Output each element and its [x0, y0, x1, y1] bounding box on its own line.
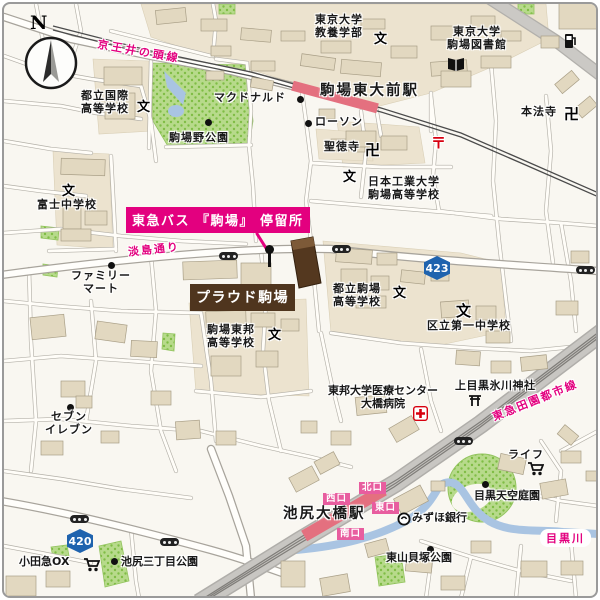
route-badge-423: 423 [424, 256, 450, 280]
poi-dot-komabano [205, 119, 212, 126]
label-nihon-kogyo: 日本工業大学 駒場高等学校 [368, 175, 440, 201]
road-label-awashima: 淡島通り [127, 240, 180, 259]
label-komaba-toho: 駒場東邦 高等学校 [207, 323, 255, 349]
label-kokusai-high: 都立国際 高等学校 [73, 89, 137, 115]
label-todai-kyoyo: 東京大学 教養学部 [309, 13, 369, 39]
library-book-icon [446, 58, 466, 73]
manji-icon-honpoji: 卍 [564, 103, 579, 124]
label-shotokuji: 聖徳寺 [324, 140, 360, 153]
traffic-light-icon [576, 266, 595, 274]
map-frame: N 京王井の頭線 淡島通り 東急田園都市線 駒場東大前駅 池尻大橋駅 北口 西口… [2, 2, 598, 598]
post-office-icon: 〒 [431, 132, 446, 153]
label-overlay: N 京王井の頭線 淡島通り 東急田園都市線 駒場東大前駅 池尻大橋駅 北口 西口… [4, 4, 596, 596]
traffic-light-icon [219, 252, 238, 260]
bank-icon-mizuho [397, 512, 411, 526]
bus-stop-banner: 東急バス 『駒場』 停留所 [126, 207, 310, 233]
property-banner: プラウド駒場 [190, 284, 295, 311]
exit-badge-south: 南口 [337, 528, 364, 540]
traffic-light-icon [160, 538, 179, 546]
school-symbol-toritsu-komaba: 文 [393, 282, 406, 301]
label-honpoji: 本法寺 [521, 105, 557, 118]
traffic-light-icon [70, 515, 89, 523]
torii-icon [468, 393, 482, 406]
bus-stop-icon [268, 252, 271, 267]
cart-icon-odakyu [83, 557, 100, 572]
exit-badge-west: 西口 [323, 493, 350, 505]
poi-dot-ikejiri-park [111, 558, 118, 565]
school-symbol-komaba-toho: 文 [268, 324, 281, 343]
label-toritsu-komaba: 都立駒場 高等学校 [333, 282, 381, 308]
school-symbol-fuji: 文 [62, 180, 75, 199]
traffic-light-icon [454, 437, 473, 445]
label-fuji-junior: 富士中学校 [37, 198, 97, 211]
label-ohashi-hospital: 東邦大学医療センター 大橋病院 [312, 384, 454, 410]
railway-label-keio: 京王井の頭線 [96, 38, 181, 66]
exit-badge-north: 北口 [359, 482, 386, 494]
manji-icon-shotokuji: 卍 [365, 139, 380, 160]
label-hikawa-shrine: 上目黒氷川神社 [455, 379, 536, 392]
label-lawson: ローソン [315, 115, 363, 128]
river-label-megurogawa: 目黒川 [540, 529, 591, 547]
traffic-light-icon [332, 245, 351, 253]
exit-badge-east: 東口 [372, 502, 399, 514]
label-higashiyama-kaizuka: 東山貝塚公園 [386, 551, 452, 564]
gas-station-icon [564, 33, 577, 49]
station-label-ikejiri-ohashi: 池尻大橋駅 [283, 506, 366, 523]
hospital-cross-icon [413, 406, 428, 421]
school-symbol-kuritsu: 文 [456, 300, 471, 321]
station-label-komaba-todaimae: 駒場東大前駅 [320, 83, 419, 100]
compass-icon [22, 34, 80, 92]
route-badge-420: 420 [67, 529, 93, 553]
map-screenshot: N 京王井の頭線 淡島通り 東急田園都市線 駒場東大前駅 池尻大橋駅 北口 西口… [0, 0, 600, 600]
label-seven-eleven: セブン イレブン [40, 410, 98, 436]
cart-icon-life [527, 461, 544, 476]
label-meguro-tenku: 目黒天空庭園 [474, 489, 540, 502]
school-symbol-nihon-kogyo: 文 [343, 166, 356, 185]
label-todai-library: 東京大学 駒場図書館 [437, 25, 517, 51]
poi-dot-tenku [482, 481, 489, 488]
label-ikejiri-sanchome: 池尻三丁目公園 [121, 555, 198, 568]
poi-dot-familymart [108, 262, 115, 269]
label-familymart: ファミリー マート [66, 269, 136, 295]
poi-dot-lawson [305, 120, 312, 127]
label-mizuho-bank: みずほ銀行 [412, 511, 467, 524]
school-symbol-kokusai: 文 [137, 96, 150, 115]
label-life: ライフ [508, 448, 544, 461]
school-symbol-todai: 文 [374, 28, 387, 47]
poi-dot-mcdonalds [297, 96, 304, 103]
compass-north-label: N [30, 12, 47, 34]
label-komabano-park: 駒場野公園 [169, 131, 229, 144]
label-odakyu-ox: 小田急OX [19, 555, 69, 568]
label-kuritsu-daiichi: 区立第一中学校 [427, 319, 511, 332]
label-mcdonalds: マクドナルド [214, 91, 286, 104]
